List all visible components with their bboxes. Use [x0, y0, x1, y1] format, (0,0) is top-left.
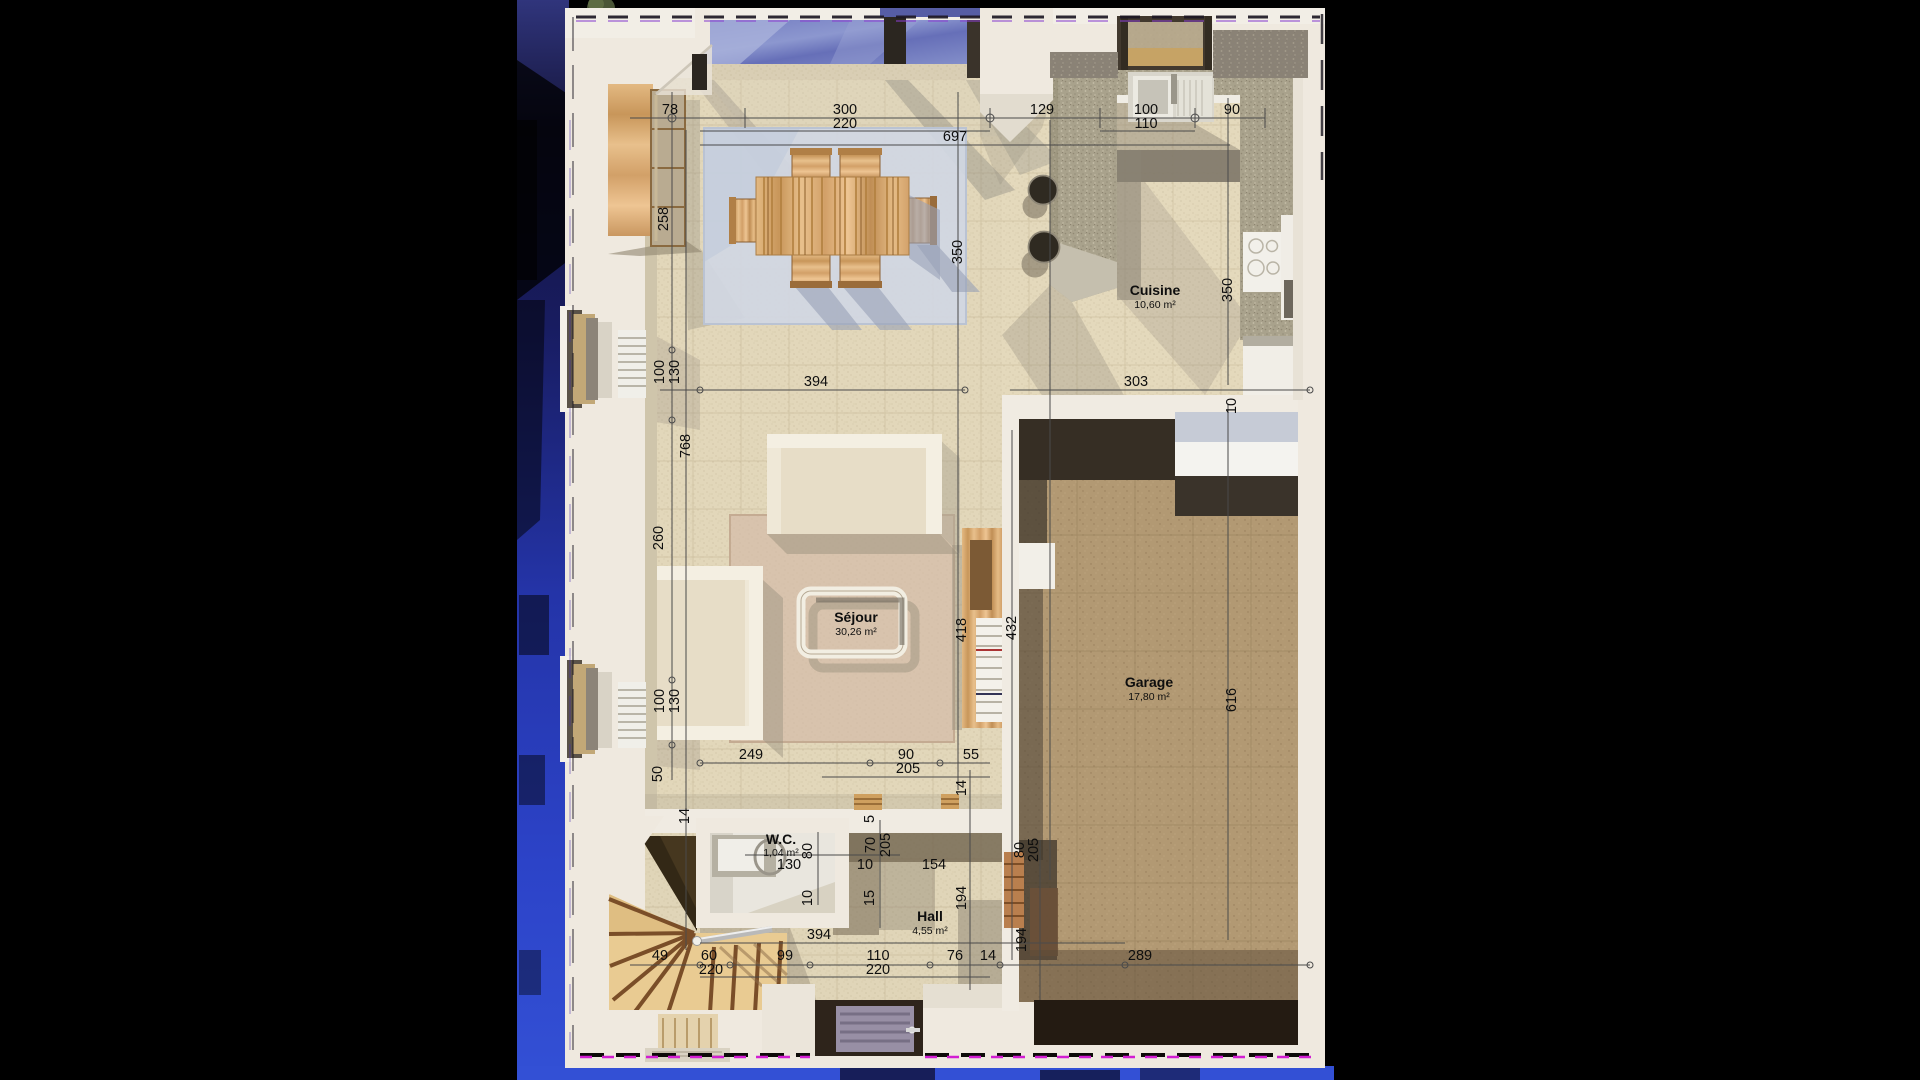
- svg-text:17,80 m²: 17,80 m²: [1128, 691, 1170, 703]
- svg-text:249: 249: [739, 747, 763, 763]
- svg-text:1,04 m²: 1,04 m²: [763, 847, 799, 859]
- svg-text:350: 350: [1220, 278, 1236, 302]
- svg-text:194: 194: [1014, 928, 1030, 952]
- svg-text:14: 14: [980, 948, 996, 964]
- svg-text:432: 432: [1004, 616, 1020, 640]
- svg-text:697: 697: [943, 129, 967, 145]
- svg-text:220: 220: [699, 962, 723, 978]
- svg-text:76: 76: [947, 948, 963, 964]
- svg-text:616: 616: [1224, 688, 1240, 712]
- svg-text:130: 130: [667, 360, 683, 384]
- svg-text:350: 350: [950, 240, 966, 264]
- svg-text:30,26 m²: 30,26 m²: [835, 626, 877, 638]
- svg-text:129: 129: [1030, 102, 1054, 118]
- svg-text:Cuisine: Cuisine: [1130, 282, 1181, 298]
- svg-text:4,55 m²: 4,55 m²: [912, 925, 948, 937]
- svg-text:70: 70: [863, 837, 879, 853]
- svg-text:194: 194: [954, 886, 970, 910]
- svg-text:10: 10: [800, 890, 816, 906]
- svg-text:14: 14: [677, 808, 693, 824]
- svg-text:289: 289: [1128, 948, 1152, 964]
- svg-text:99: 99: [777, 948, 793, 964]
- svg-text:Garage: Garage: [1125, 674, 1173, 690]
- svg-text:100: 100: [652, 689, 668, 713]
- svg-text:205: 205: [896, 761, 920, 777]
- svg-text:Hall: Hall: [917, 908, 943, 924]
- svg-text:768: 768: [678, 434, 694, 458]
- svg-text:100: 100: [652, 360, 668, 384]
- svg-text:50: 50: [650, 766, 666, 782]
- svg-text:205: 205: [878, 833, 894, 857]
- svg-text:394: 394: [804, 374, 828, 390]
- svg-text:154: 154: [922, 857, 946, 873]
- svg-text:130: 130: [667, 689, 683, 713]
- svg-text:15: 15: [862, 890, 878, 906]
- svg-text:Séjour: Séjour: [834, 609, 878, 625]
- svg-text:10,60 m²: 10,60 m²: [1134, 299, 1176, 311]
- svg-text:110: 110: [1134, 116, 1157, 132]
- svg-text:258: 258: [656, 207, 672, 231]
- svg-text:130: 130: [777, 857, 801, 873]
- svg-text:220: 220: [866, 962, 890, 978]
- svg-text:394: 394: [807, 927, 831, 943]
- svg-text:260: 260: [651, 526, 667, 550]
- svg-text:205: 205: [1026, 838, 1042, 862]
- svg-text:W.C.: W.C.: [766, 831, 796, 847]
- svg-text:80: 80: [800, 843, 816, 859]
- svg-text:55: 55: [963, 747, 979, 763]
- svg-text:10: 10: [1224, 398, 1240, 414]
- svg-text:90: 90: [1224, 102, 1240, 118]
- svg-text:78: 78: [662, 102, 678, 118]
- svg-text:49: 49: [652, 948, 668, 964]
- svg-text:5: 5: [862, 815, 878, 823]
- svg-text:418: 418: [954, 618, 970, 642]
- svg-text:14: 14: [954, 780, 970, 796]
- svg-text:220: 220: [833, 116, 857, 132]
- svg-text:10: 10: [857, 857, 873, 873]
- svg-text:303: 303: [1124, 374, 1148, 390]
